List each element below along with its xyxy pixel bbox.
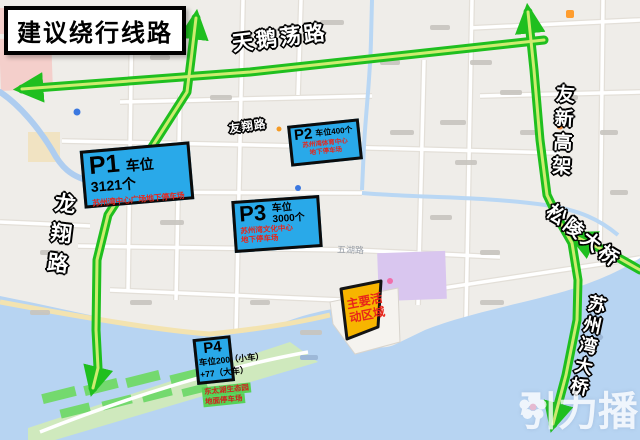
watermark: 引力播 [518,392,638,432]
road-label-youxin-gaojia: 友新高架 [549,84,574,181]
parking-id: P3 [239,203,267,226]
parking-box-p3: P3 车位 3000个 苏州湾文化中心 地下停车场 [231,195,322,253]
parking-note: 东太湖生态园 地面停车场 [202,382,253,407]
parking-box-p1: P1车位3121个 苏州湾中心广场地下停车场 [80,141,195,208]
detour-map: 建议绕行线路 天鹅荡路 友新高架 松陵大桥 苏州湾大桥 龙翔路 友翔路 五湖路 … [0,0,640,440]
road-label-wuhulu: 五湖路 [337,243,364,257]
parking-id: P1 [88,150,121,181]
parking-box-p2: P2 车位400个 苏州湾体育中心 地下停车场 [287,118,363,166]
page-title: 建议绕行线路 [4,6,186,55]
flower-icon [518,392,548,422]
parking-capacity: 车位 3000个 [271,201,305,225]
parking-box-p4: P4 车位200（小车） +77（大车） 东太湖生态园 地面停车场 [192,329,295,411]
